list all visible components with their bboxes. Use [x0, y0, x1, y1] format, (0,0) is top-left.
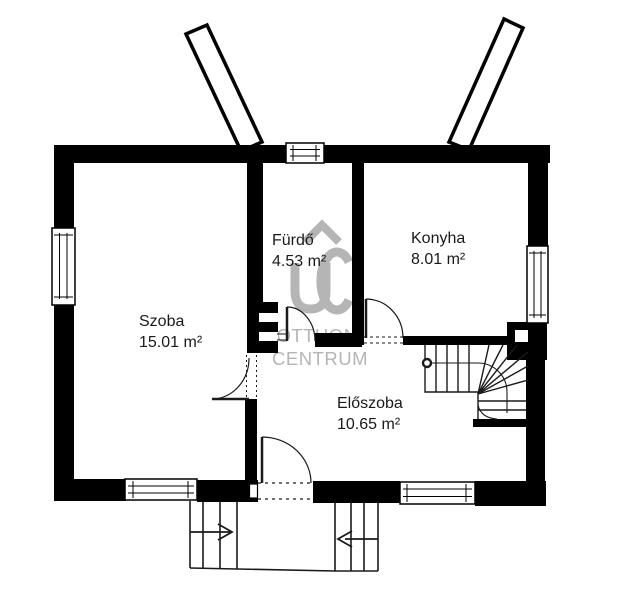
- stair-newel-icon: [423, 359, 431, 367]
- door-furdo: [277, 307, 315, 341]
- window-bottom-left: [125, 479, 197, 500]
- window-left: [52, 228, 75, 305]
- step-arrow-right-icon: [190, 524, 232, 540]
- chimney-flue-left-icon: [186, 25, 262, 151]
- floor-plan: OTTHON CENTRUM: [0, 0, 640, 593]
- door-konyha: [364, 299, 403, 343]
- chimney-flue-right-icon: [449, 19, 523, 150]
- walls: [54, 145, 550, 506]
- doors: [212, 299, 403, 499]
- entry-steps: [190, 501, 378, 571]
- window-furdo-top: [286, 143, 324, 163]
- door-szoba: [212, 355, 257, 399]
- step-arrow-left-icon: [338, 531, 378, 547]
- windows: [52, 143, 548, 504]
- window-bottom-right: [400, 482, 475, 504]
- window-right: [527, 246, 548, 323]
- door-entry: [258, 437, 313, 499]
